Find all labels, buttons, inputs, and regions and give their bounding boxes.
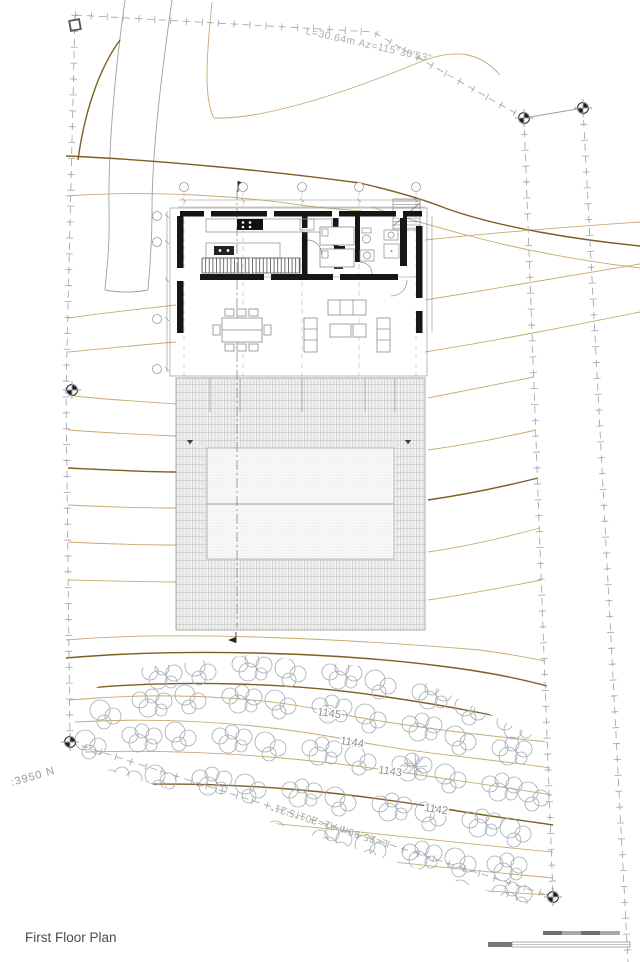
grid-bubble [239, 183, 248, 192]
kitchen [202, 219, 332, 273]
grid-bubble [180, 183, 189, 192]
drawing-title: First Floor Plan [25, 930, 117, 945]
grid-bubble [153, 315, 162, 324]
benchmark-icon [544, 888, 562, 906]
grid-bubble [412, 183, 421, 192]
contour-label-1143: 1143 [378, 764, 403, 779]
road-track [105, 0, 172, 292]
grid-bubble [153, 238, 162, 247]
bedroom [308, 227, 355, 267]
survey-monument-icon [69, 19, 81, 31]
door-swing [391, 280, 407, 296]
grid-bubble [298, 183, 307, 192]
benchmark-icon [574, 99, 592, 117]
grid-bubble [355, 183, 364, 192]
site-plan-drawing: L=30.64m Az=115°30'53" L=25.96m Az=201°5… [0, 0, 640, 962]
tree-star-icon [403, 754, 427, 778]
datum-coordinate-label: :3950 N [10, 765, 57, 789]
section-flag-icon [228, 632, 236, 643]
bathroom [360, 228, 399, 274]
contour-label-1142: 1142 [424, 802, 449, 817]
building-floor-plan [170, 199, 427, 376]
living-dining-furniture [213, 300, 390, 352]
benchmark-icon [515, 109, 533, 127]
pool [207, 448, 394, 559]
boundary-length-label-top: L=30.64m Az=115°30'53" [305, 25, 433, 65]
vegetation-contours [68, 683, 553, 895]
contour-label-1144: 1144 [340, 735, 365, 750]
vegetation [75, 653, 549, 910]
scale-bar [488, 931, 630, 947]
deck-terrace [176, 378, 425, 630]
drawing-sheet: L=30.64m Az=115°30'53" L=25.96m Az=201°5… [0, 0, 640, 962]
grid-bubble [153, 365, 162, 374]
grid-bubble [153, 212, 162, 221]
